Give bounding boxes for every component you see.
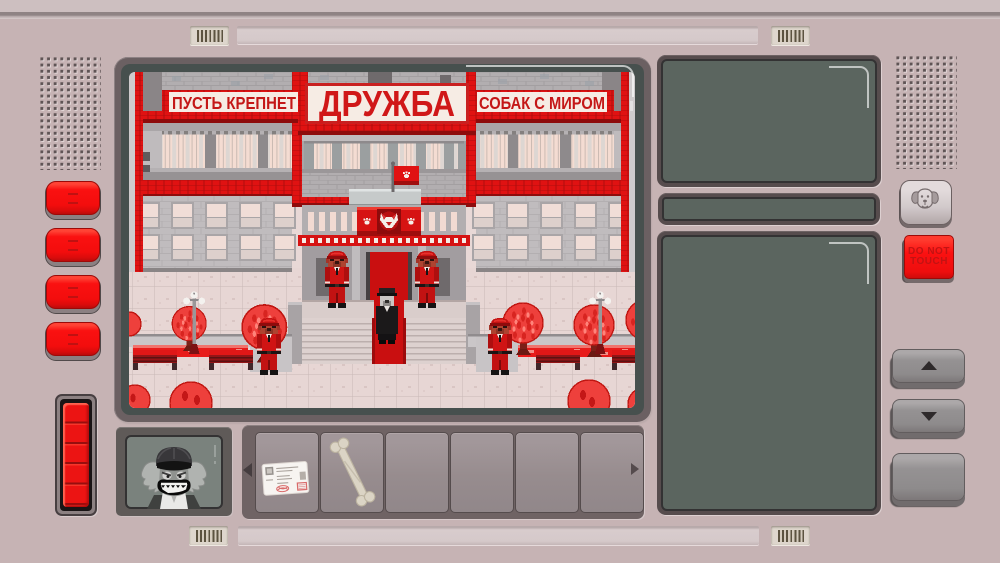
svg-text:ДРУЖБА: ДРУЖБА [319,83,455,124]
svg-text:ПУСТЬ КРЕПНЕТ: ПУСТЬ КРЕПНЕТ [172,93,296,113]
